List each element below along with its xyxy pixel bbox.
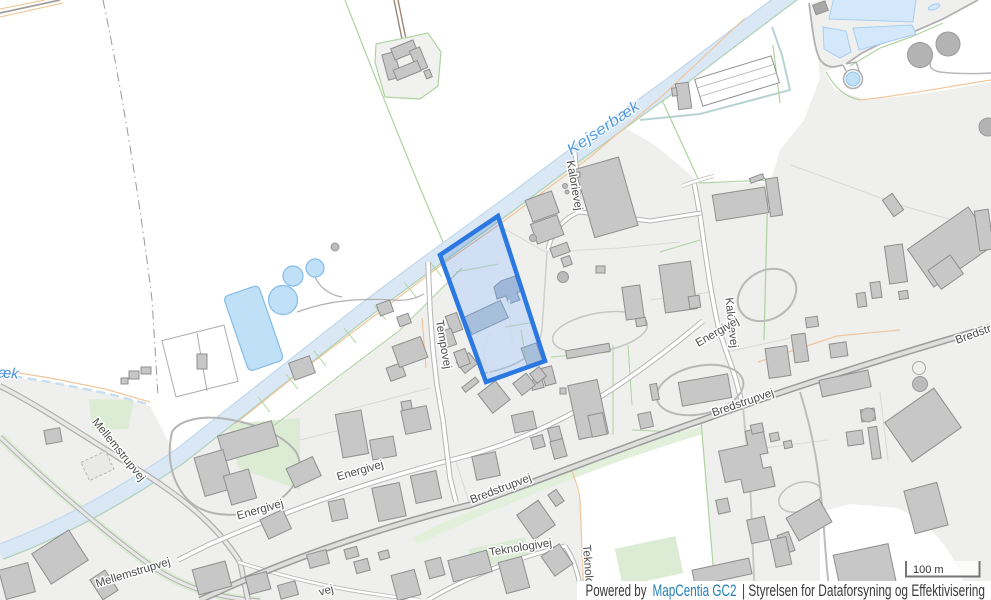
svg-text:100 m: 100 m [913,564,944,576]
svg-text:| Styrelsen for Dataforsyning: | Styrelsen for Dataforsyning og Effekti… [742,582,985,600]
svg-text:æk: æk [0,364,21,383]
svg-text:Powered by: Powered by [586,582,648,600]
svg-text:MapCentia GC2: MapCentia GC2 [653,582,737,600]
